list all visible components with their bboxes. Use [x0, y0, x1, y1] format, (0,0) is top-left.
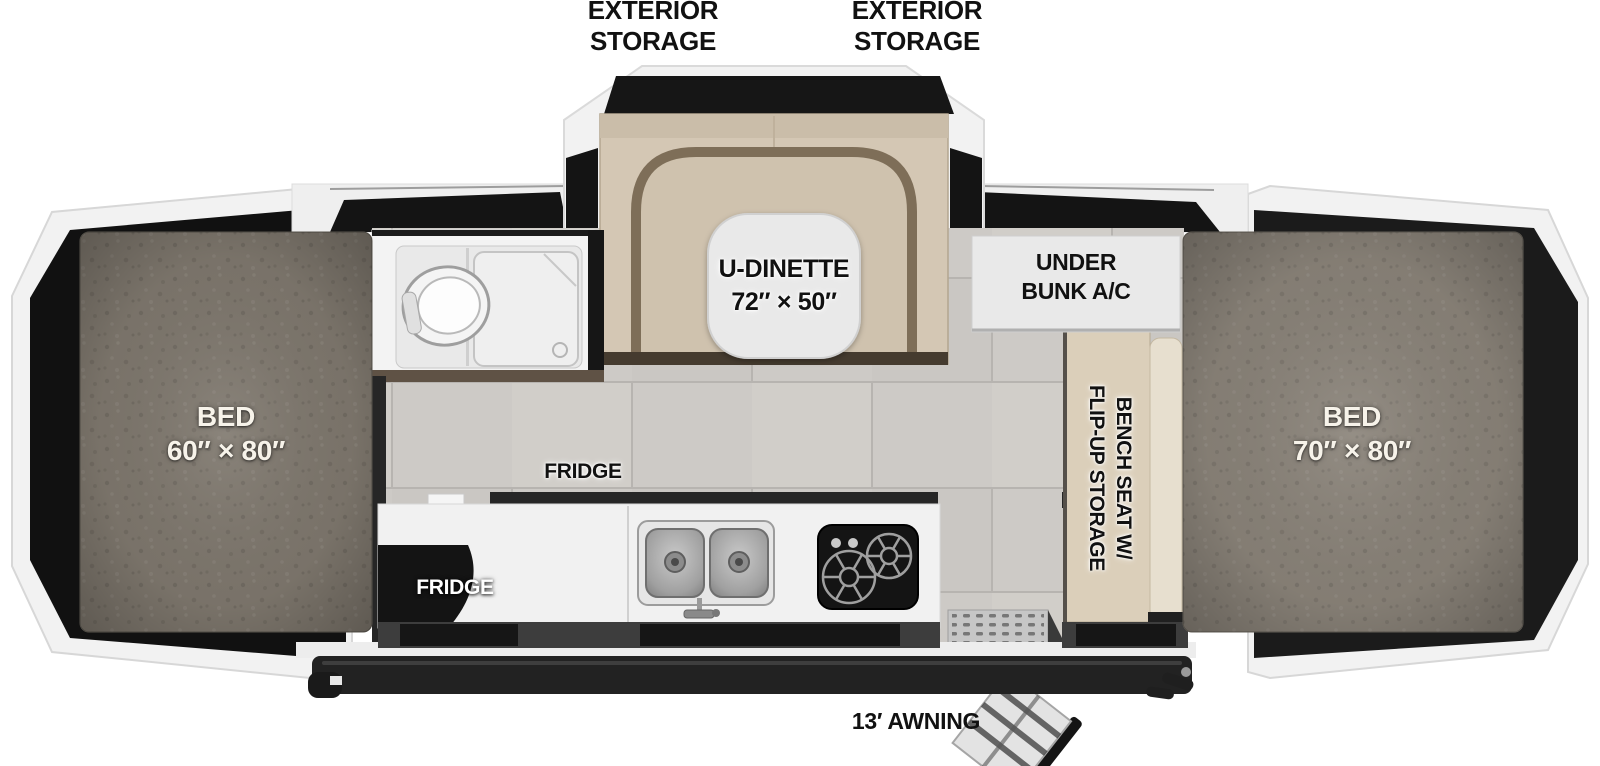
- exterior-storage-left-line2: STORAGE: [553, 26, 753, 57]
- exterior-storage-right-line1: EXTERIOR: [817, 0, 1017, 26]
- awning-bar: [308, 656, 1195, 700]
- top-wall-left: [292, 184, 568, 232]
- fridge-interior-label: FRIDGE: [503, 461, 663, 483]
- bed-left-line2: 60″ × 80″: [106, 434, 346, 468]
- exterior-storage-right-line2: STORAGE: [817, 26, 1017, 57]
- stove: [818, 525, 918, 609]
- awning-label: 13′ AWNING: [816, 709, 1016, 733]
- u-dinette-line2: 72″ × 50″: [684, 286, 884, 319]
- under-bunk-ac-label: UNDER BUNK A/C: [976, 248, 1176, 306]
- bed-left-line1: BED: [106, 400, 346, 434]
- bed-left-label: BED 60″ × 80″: [106, 400, 346, 468]
- bed-right-line1: BED: [1232, 400, 1472, 434]
- exterior-storage-left-line1: EXTERIOR: [553, 0, 753, 26]
- double-sink: [638, 521, 774, 618]
- floorplan-art: [0, 0, 1600, 766]
- bed-right-label: BED 70″ × 80″: [1232, 400, 1472, 468]
- bench-seat-label: BENCH SEAT W/ FLIP-UP STORAGE: [1083, 333, 1137, 623]
- bathroom-cassette: [372, 230, 604, 382]
- u-dinette-label: U-DINETTE 72″ × 50″: [684, 253, 884, 319]
- bench-seat-line1: BENCH SEAT W/: [1110, 333, 1137, 623]
- under-bunk-ac-line2: BUNK A/C: [976, 277, 1176, 306]
- exterior-storage-left-label: EXTERIOR STORAGE: [553, 0, 753, 57]
- u-dinette-line1: U-DINETTE: [684, 253, 884, 286]
- bed-right-line2: 70″ × 80″: [1232, 434, 1472, 468]
- under-bunk-ac-line1: UNDER: [976, 248, 1176, 277]
- top-wall-right: [974, 184, 1248, 232]
- exterior-storage-right-label: EXTERIOR STORAGE: [817, 0, 1017, 57]
- floorplan-canvas: EXTERIOR STORAGE EXTERIOR STORAGE U-DINE…: [0, 0, 1600, 766]
- stove-knob: [831, 538, 841, 548]
- fridge-exterior-label: FRIDGE: [375, 577, 535, 599]
- bench-seat-line2: FLIP-UP STORAGE: [1083, 333, 1110, 623]
- stove-knob: [848, 538, 858, 548]
